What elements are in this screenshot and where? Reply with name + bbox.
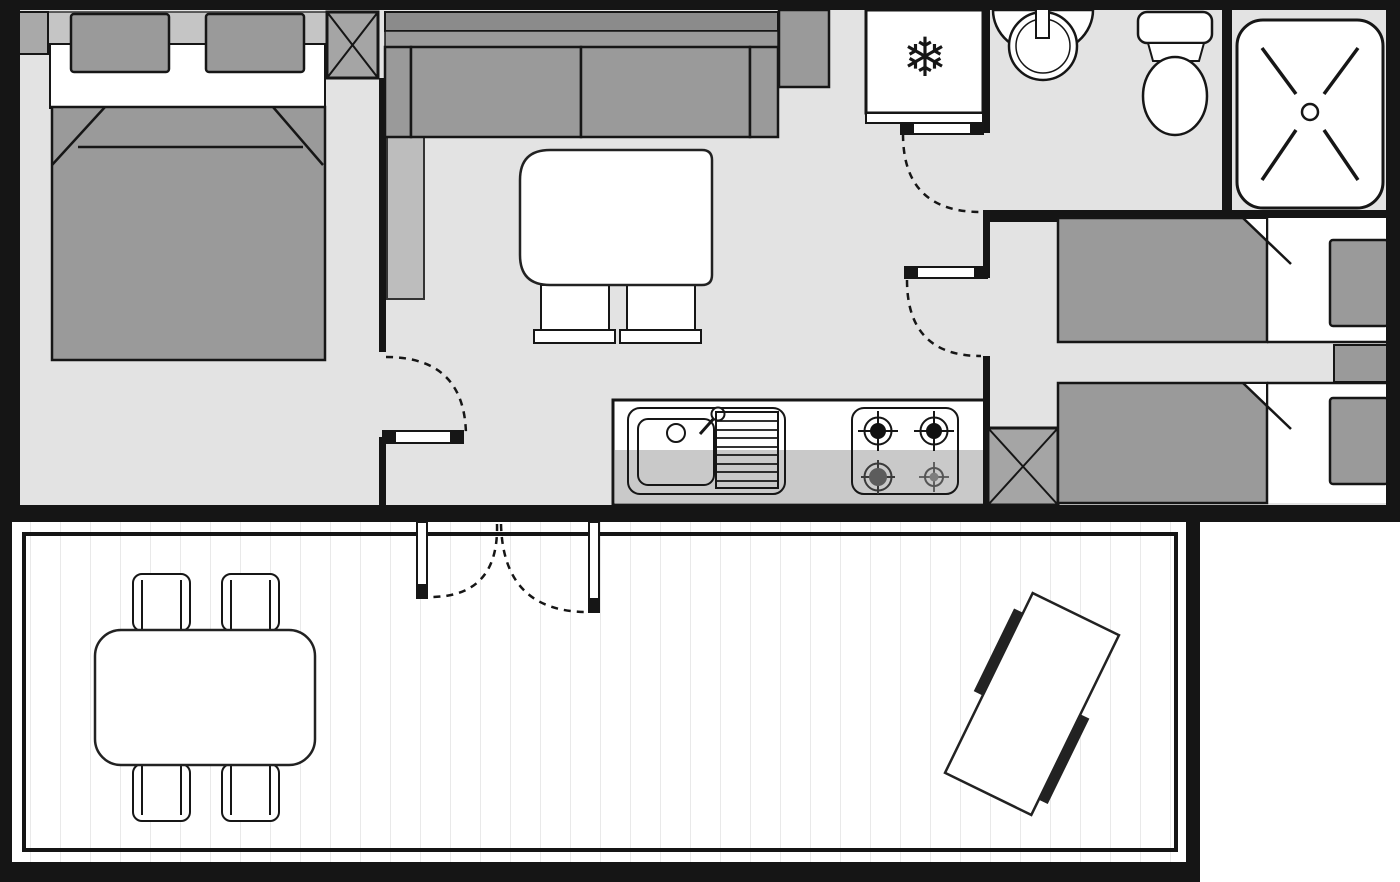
wall-right (1386, 0, 1400, 522)
hall-wall-top (983, 10, 990, 133)
deck-door-leaf-left (417, 522, 427, 588)
deck-chair-1 (133, 574, 190, 631)
basin-faucet (1036, 6, 1049, 38)
deck-wall-right (1186, 522, 1200, 882)
toilet (1138, 12, 1212, 135)
twin-bed-1-duvet (1058, 218, 1267, 342)
shower-wall (1222, 8, 1232, 212)
fridge-freezer: ❄ (866, 10, 983, 123)
twin-bedroom-door (905, 267, 987, 278)
double-bedroom (13, 12, 328, 360)
toilet-cistern (1138, 12, 1212, 43)
deck-wall-bottom (0, 862, 1200, 882)
toilet-bowl (1143, 57, 1207, 135)
column-b (988, 428, 1058, 505)
deck-chair-4 (222, 764, 279, 821)
deck-wall-left (0, 522, 12, 882)
deck-dining-table (95, 630, 315, 765)
sofa-seat-left (411, 47, 581, 137)
floor-plan: ❄ (0, 0, 1400, 882)
twin-bed-2-pillow (1330, 398, 1388, 484)
twin-bed-2 (1058, 383, 1388, 503)
sofa-armrest-right (750, 47, 778, 137)
column-a (327, 12, 378, 78)
coffee-table (520, 150, 712, 285)
sofa-armrest-left (385, 47, 411, 137)
sofa (385, 12, 778, 137)
twin-bed-1 (1058, 218, 1388, 342)
wall-top (0, 0, 1400, 10)
deck-chair-3 (133, 764, 190, 821)
duvet (52, 107, 325, 360)
shower-tray (1237, 20, 1383, 208)
deck-door-leaf-right (589, 522, 599, 602)
deck-chair-2 (222, 574, 279, 631)
bedroom-wall-lower (379, 437, 386, 505)
dining-chair-1 (534, 285, 615, 343)
floor-plan-drawing: ❄ (0, 0, 1400, 882)
pillow-left (71, 14, 169, 72)
wall-mid-band (0, 505, 1400, 522)
sofa-seat-right (581, 47, 750, 137)
snowflake-icon: ❄ (902, 26, 947, 89)
fridge-door-edge (866, 113, 983, 123)
bedroom-door (383, 431, 463, 443)
bathroom-door (901, 123, 983, 134)
wall-left (0, 0, 20, 522)
nightstand (1334, 345, 1388, 382)
twin-bed-1-pillow (1330, 240, 1388, 326)
end-table (779, 10, 829, 87)
dining-chair-2 (620, 285, 701, 343)
twin-bed-2-duvet (1058, 383, 1267, 503)
shower-drain (1302, 104, 1318, 120)
pillow-right (206, 14, 304, 72)
